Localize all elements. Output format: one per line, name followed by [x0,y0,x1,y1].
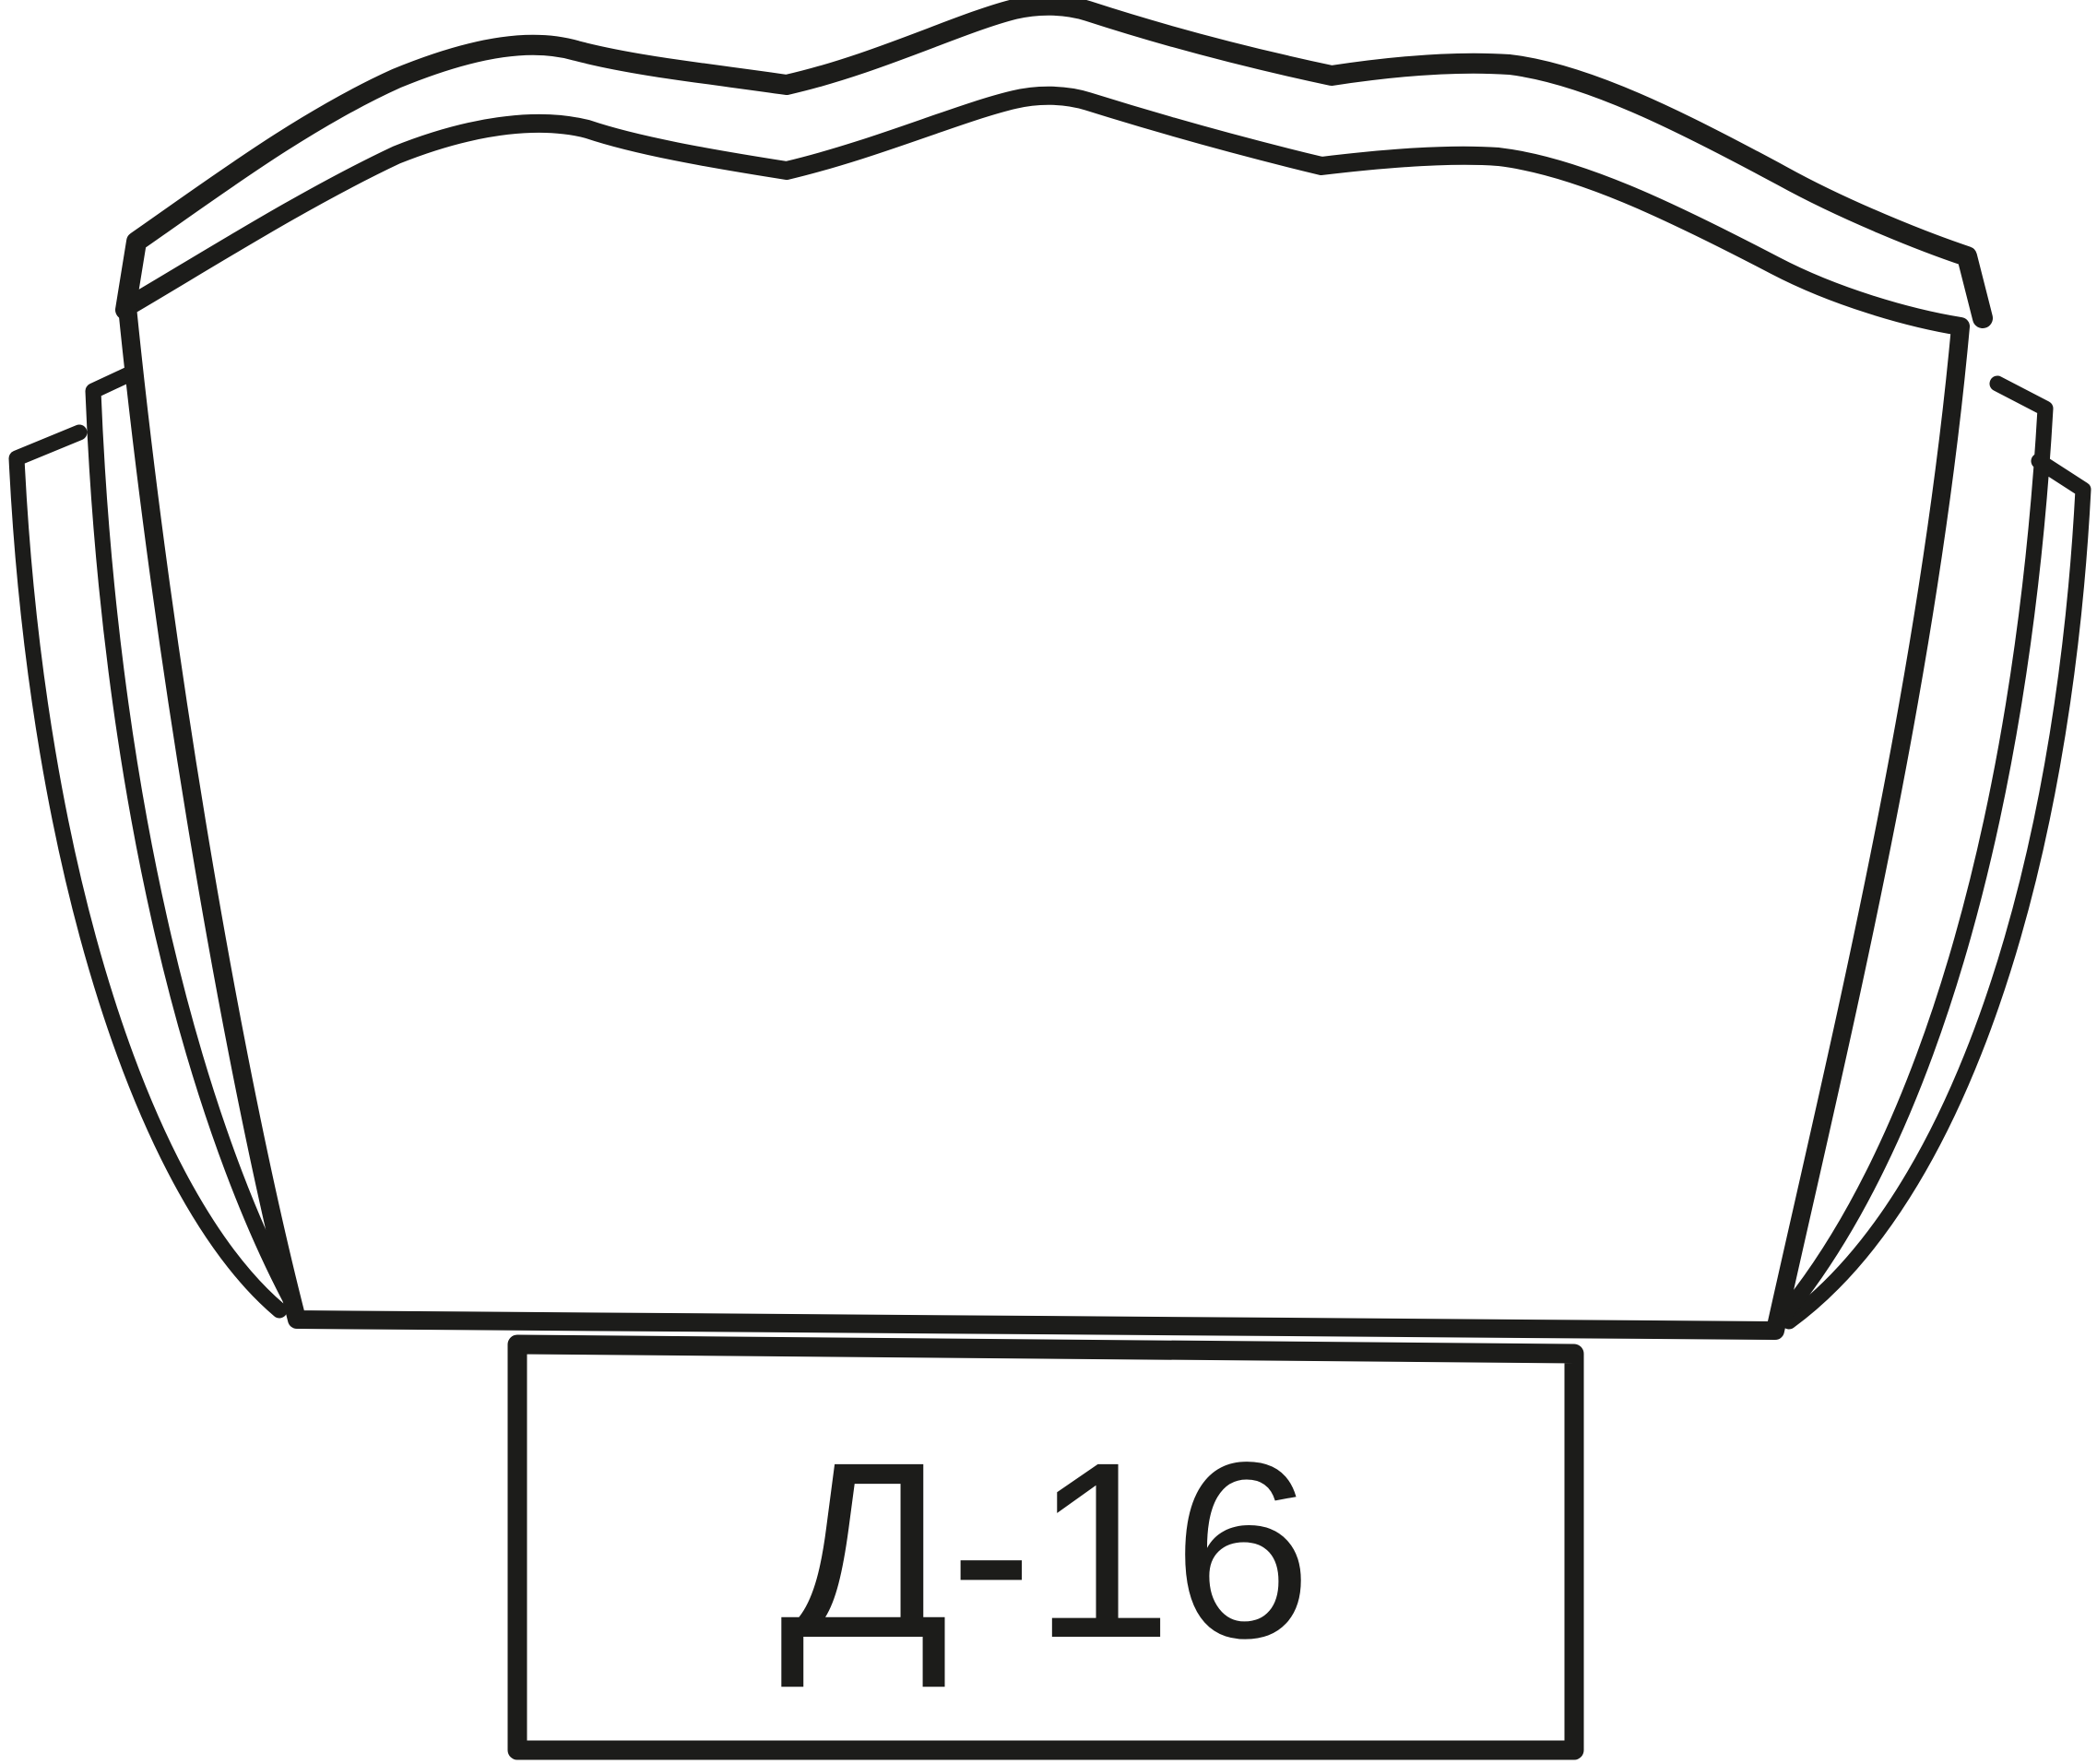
monument-sketch-canvas: Д-16 [0,0,2097,1764]
model-number-label: Д-16 [779,1410,1311,1690]
monument-diagram-svg: Д-16 [0,0,2097,1764]
stela-front-face-outline [127,96,1961,1331]
